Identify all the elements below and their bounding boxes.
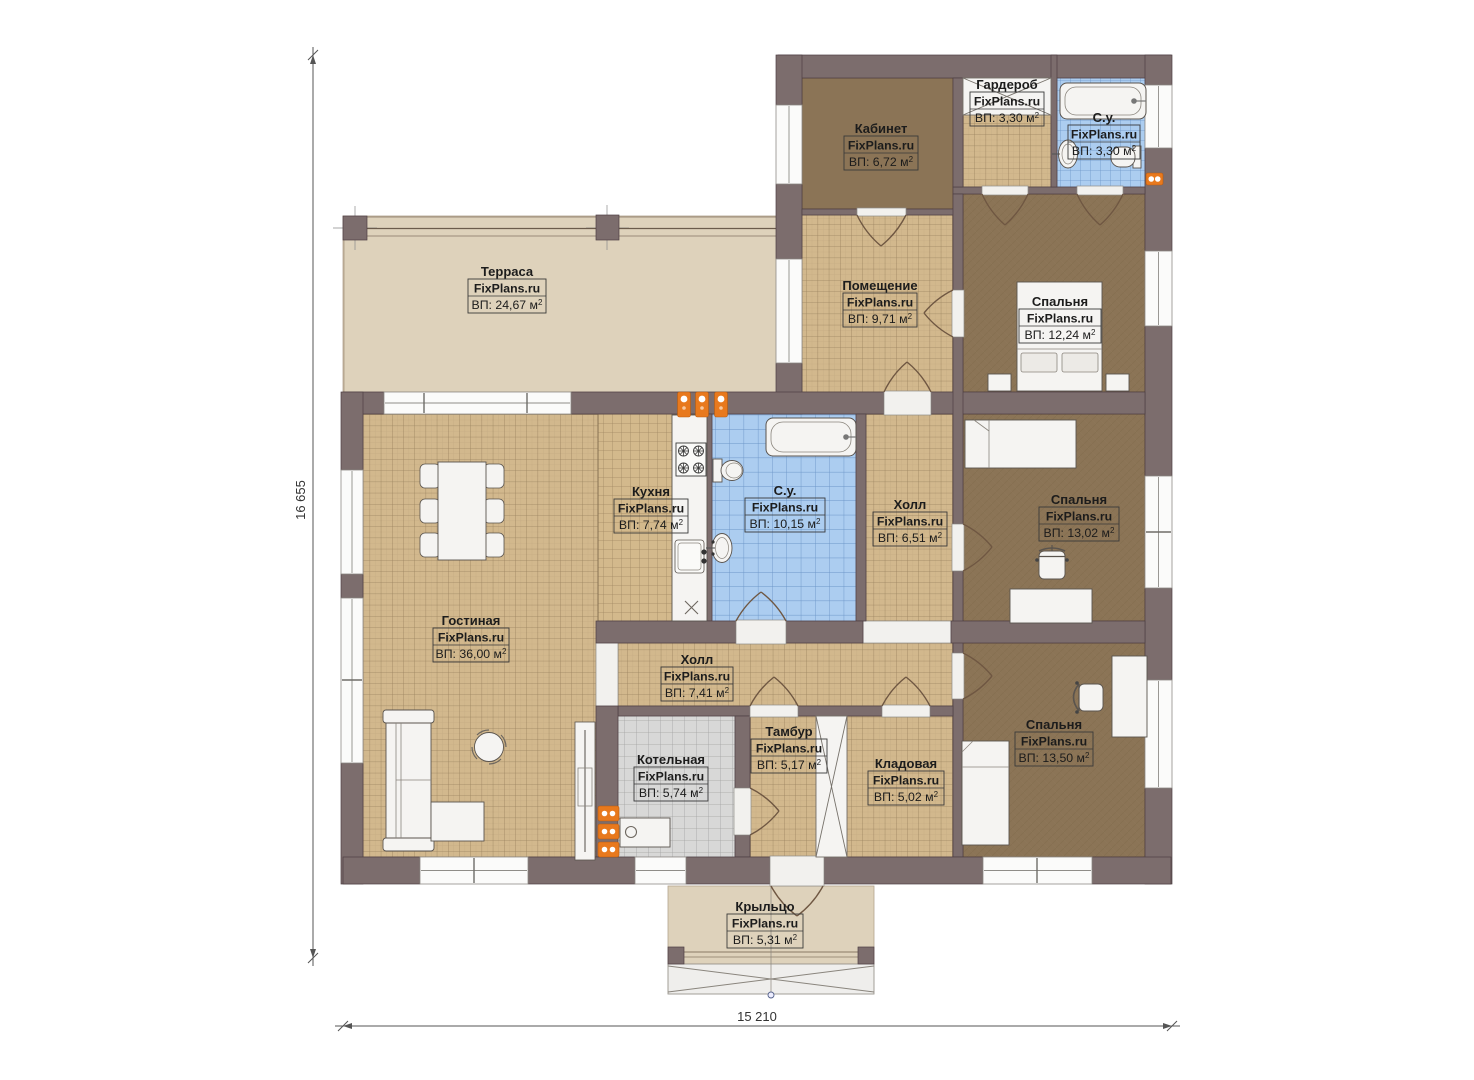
svg-text:FixPlans.ru: FixPlans.ru [848, 139, 914, 153]
svg-text:С.у.: С.у. [774, 483, 797, 498]
svg-text:FixPlans.ru: FixPlans.ru [638, 770, 704, 784]
svg-text:Кладовая: Кладовая [875, 756, 937, 771]
svg-text:Тамбур: Тамбур [765, 724, 812, 739]
svg-text:ВП: 10,15 м2: ВП: 10,15 м2 [750, 517, 822, 531]
svg-text:С.у.: С.у. [1093, 110, 1116, 125]
svg-text:FixPlans.ru: FixPlans.ru [618, 502, 684, 516]
svg-text:FixPlans.ru: FixPlans.ru [1021, 735, 1087, 749]
svg-text:ВП: 5,31 м2: ВП: 5,31 м2 [733, 933, 798, 947]
svg-text:Терраса: Терраса [481, 264, 534, 279]
svg-text:Кабинет: Кабинет [855, 121, 908, 136]
svg-text:FixPlans.ru: FixPlans.ru [1071, 128, 1137, 142]
svg-text:ВП: 6,72 м2: ВП: 6,72 м2 [849, 155, 914, 169]
svg-text:ВП: 5,02 м2: ВП: 5,02 м2 [874, 790, 939, 804]
svg-text:ВП: 24,67 м2: ВП: 24,67 м2 [472, 298, 544, 312]
svg-text:16 655: 16 655 [293, 480, 308, 520]
svg-text:15 210: 15 210 [737, 1009, 777, 1024]
svg-text:ВП: 3,30 м2: ВП: 3,30 м2 [975, 111, 1040, 125]
svg-text:FixPlans.ru: FixPlans.ru [873, 774, 939, 788]
svg-text:Спальня: Спальня [1032, 294, 1088, 309]
svg-text:Спальня: Спальня [1026, 717, 1082, 732]
svg-text:FixPlans.ru: FixPlans.ru [752, 501, 818, 515]
svg-text:Помещение: Помещение [842, 278, 917, 293]
svg-text:ВП: 9,71 м2: ВП: 9,71 м2 [848, 312, 913, 326]
svg-text:ВП: 6,51 м2: ВП: 6,51 м2 [878, 531, 943, 545]
svg-text:FixPlans.ru: FixPlans.ru [474, 282, 540, 296]
svg-text:Холл: Холл [894, 497, 927, 512]
svg-text:ВП: 5,17 м2: ВП: 5,17 м2 [757, 758, 822, 772]
svg-text:Кухня: Кухня [632, 484, 670, 499]
svg-text:ВП: 3,30 м2: ВП: 3,30 м2 [1072, 144, 1137, 158]
svg-text:ВП: 36,00 м2: ВП: 36,00 м2 [436, 647, 508, 661]
svg-text:FixPlans.ru: FixPlans.ru [438, 631, 504, 645]
svg-text:Спальня: Спальня [1051, 492, 1107, 507]
svg-text:FixPlans.ru: FixPlans.ru [877, 515, 943, 529]
svg-text:ВП: 5,74 м2: ВП: 5,74 м2 [639, 786, 704, 800]
svg-text:Гостиная: Гостиная [442, 613, 501, 628]
svg-text:FixPlans.ru: FixPlans.ru [847, 296, 913, 310]
svg-text:ВП: 13,50 м2: ВП: 13,50 м2 [1019, 751, 1091, 765]
svg-text:Холл: Холл [681, 652, 714, 667]
svg-text:ВП: 7,74 м2: ВП: 7,74 м2 [619, 518, 684, 532]
svg-text:FixPlans.ru: FixPlans.ru [756, 742, 822, 756]
svg-text:FixPlans.ru: FixPlans.ru [1046, 510, 1112, 524]
svg-text:FixPlans.ru: FixPlans.ru [732, 917, 798, 931]
svg-text:Крыльцо: Крыльцо [735, 899, 794, 914]
svg-text:FixPlans.ru: FixPlans.ru [1027, 312, 1093, 326]
svg-text:ВП: 13,02 м2: ВП: 13,02 м2 [1044, 526, 1116, 540]
svg-text:FixPlans.ru: FixPlans.ru [974, 95, 1040, 109]
svg-text:ВП: 12,24 м2: ВП: 12,24 м2 [1025, 328, 1097, 342]
svg-text:Гардероб: Гардероб [976, 77, 1037, 92]
svg-text:Котельная: Котельная [637, 752, 705, 767]
svg-text:FixPlans.ru: FixPlans.ru [664, 670, 730, 684]
svg-text:ВП: 7,41 м2: ВП: 7,41 м2 [665, 686, 730, 700]
